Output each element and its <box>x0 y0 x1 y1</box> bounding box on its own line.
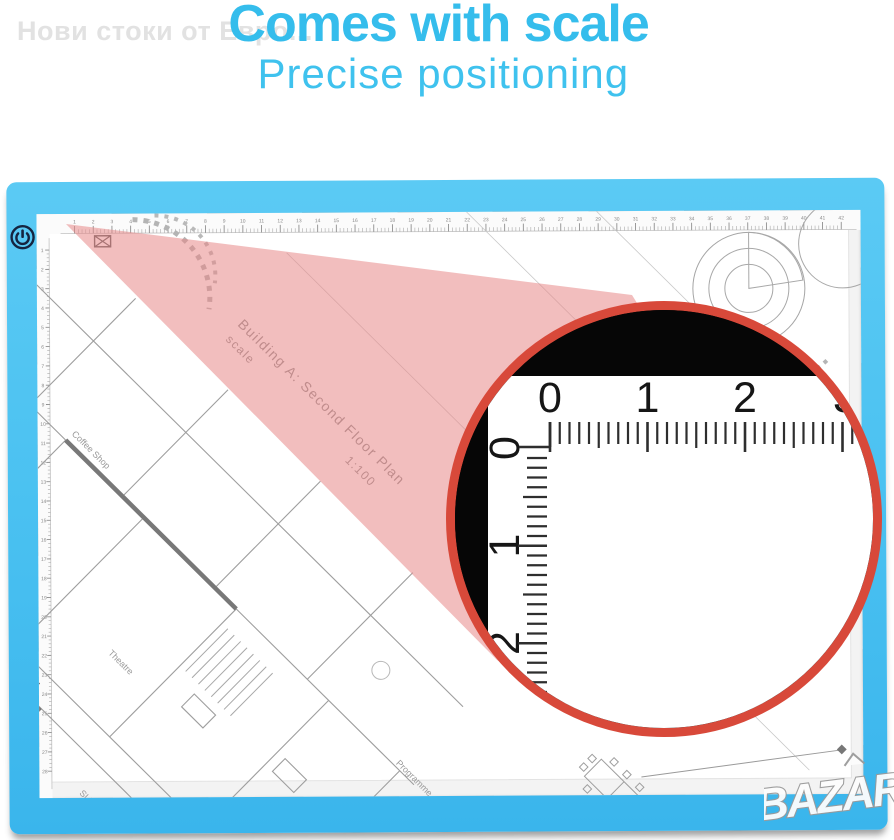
svg-text:15: 15 <box>41 518 47 524</box>
magnified-scale: 0 1 2 3 0 1 2 <box>455 310 873 728</box>
svg-text:18: 18 <box>41 576 47 582</box>
svg-text:21: 21 <box>41 634 47 640</box>
product-image: Нови стоки от Евро... Comes with scale P… <box>0 0 894 840</box>
svg-text:9: 9 <box>223 219 226 225</box>
svg-text:41: 41 <box>820 216 826 222</box>
svg-text:8: 8 <box>204 219 207 225</box>
blueprint-label: SLR Camera <box>77 788 121 798</box>
svg-text:4: 4 <box>129 219 132 225</box>
svg-text:19: 19 <box>408 218 414 224</box>
svg-text:16: 16 <box>41 538 47 544</box>
svg-text:11: 11 <box>259 218 264 224</box>
svg-text:14: 14 <box>41 499 47 505</box>
svg-text:18: 18 <box>390 218 396 224</box>
svg-text:22: 22 <box>464 217 470 223</box>
bazar-logo-watermark: BAZAR <box>764 750 894 840</box>
svg-text:26: 26 <box>42 731 48 737</box>
svg-text:27: 27 <box>558 217 564 223</box>
svg-text:42: 42 <box>838 215 844 221</box>
svg-text:17: 17 <box>371 218 377 224</box>
svg-text:5: 5 <box>41 325 44 331</box>
svg-text:4: 4 <box>41 306 44 312</box>
svg-text:10: 10 <box>40 422 46 428</box>
svg-text:32: 32 <box>651 216 657 222</box>
bazar-logo-accent <box>843 753 864 766</box>
svg-text:BAZAR: BAZAR <box>764 762 894 831</box>
svg-text:23: 23 <box>483 217 489 223</box>
svg-text:27: 27 <box>42 750 48 756</box>
svg-text:2: 2 <box>92 219 95 225</box>
svg-text:13: 13 <box>41 480 47 486</box>
svg-text:12: 12 <box>277 218 283 224</box>
svg-text:1: 1 <box>73 219 76 225</box>
svg-text:2: 2 <box>41 267 44 273</box>
svg-text:35: 35 <box>708 216 714 222</box>
svg-text:16: 16 <box>352 218 358 224</box>
svg-text:2: 2 <box>733 374 757 422</box>
svg-text:15: 15 <box>334 218 340 224</box>
svg-text:10: 10 <box>240 219 246 225</box>
svg-text:1: 1 <box>41 248 44 254</box>
magnified-pad-corner <box>488 376 873 728</box>
svg-text:36: 36 <box>726 216 732 222</box>
svg-text:19: 19 <box>41 595 47 601</box>
svg-text:17: 17 <box>41 557 47 563</box>
svg-text:8: 8 <box>41 383 44 389</box>
svg-text:6: 6 <box>167 219 170 225</box>
svg-text:28: 28 <box>42 769 48 775</box>
svg-text:21: 21 <box>446 217 452 223</box>
svg-text:25: 25 <box>521 217 527 223</box>
svg-text:24: 24 <box>502 217 508 223</box>
svg-text:22: 22 <box>41 653 47 659</box>
svg-text:11: 11 <box>41 441 46 447</box>
page-title: Comes with scale <box>228 0 648 54</box>
svg-text:39: 39 <box>782 216 788 222</box>
svg-text:31: 31 <box>633 216 639 222</box>
svg-text:37: 37 <box>745 216 751 222</box>
svg-text:34: 34 <box>689 216 695 222</box>
svg-text:30: 30 <box>614 217 620 223</box>
svg-text:6: 6 <box>41 345 44 351</box>
svg-text:23: 23 <box>42 673 48 679</box>
svg-text:0: 0 <box>538 374 562 422</box>
magnifier-circle: 0 1 2 3 0 1 2 <box>446 301 882 737</box>
svg-text:24: 24 <box>42 692 48 698</box>
svg-text:1: 1 <box>636 374 660 422</box>
svg-text:20: 20 <box>427 218 433 224</box>
svg-text:28: 28 <box>577 217 583 223</box>
svg-text:29: 29 <box>595 217 601 223</box>
svg-text:26: 26 <box>539 217 545 223</box>
page-subtitle: Precise positioning <box>258 50 630 98</box>
svg-text:14: 14 <box>315 218 321 224</box>
svg-text:38: 38 <box>764 216 770 222</box>
svg-text:13: 13 <box>296 218 302 224</box>
svg-text:7: 7 <box>41 364 44 370</box>
svg-text:9: 9 <box>42 403 45 409</box>
power-icon <box>10 224 36 250</box>
svg-text:3: 3 <box>111 219 114 225</box>
svg-text:40: 40 <box>801 216 807 222</box>
svg-text:33: 33 <box>670 216 676 222</box>
